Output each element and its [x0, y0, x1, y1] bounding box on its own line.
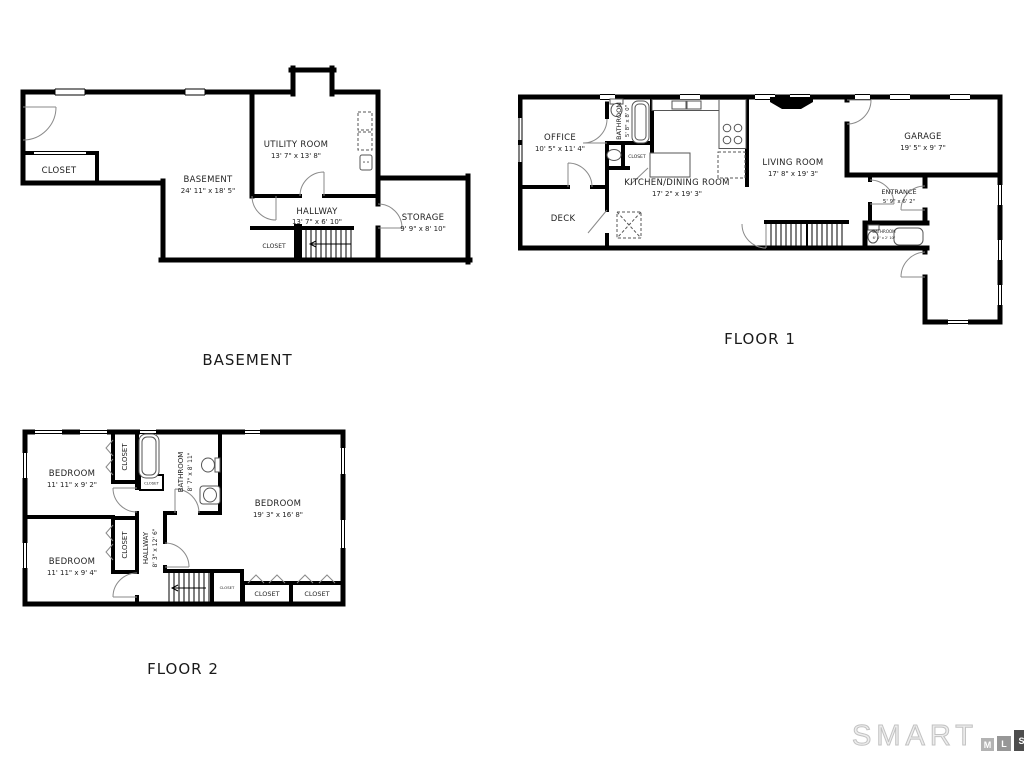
room-label-deck: DECK [551, 214, 576, 224]
room-label-bathroom-f2: BATHROOM [177, 452, 185, 493]
room-label-closet-br2: CLOSET [304, 590, 329, 598]
room-label-office: OFFICE [544, 133, 576, 143]
floorplan-sheet: CLOSET BASEMENT 24' 11" x 18' 5" UTILITY… [0, 0, 1024, 768]
room-label-storage: STORAGE [402, 213, 445, 223]
room-dims-bedroom2: 11' 11" x 9' 4" [47, 569, 97, 577]
floor1-title: FLOOR 1 [680, 330, 840, 348]
floor1-walls [520, 97, 1000, 322]
smart-logo-text: SMART [852, 722, 978, 751]
room-label-bedroom2: BEDROOM [49, 557, 95, 567]
room-label-bedroom1: BEDROOM [49, 469, 95, 479]
room-label-closet-mid: CLOSET [144, 481, 159, 486]
room-dims-hallway-f2: 8' 3" x 12' 6" [152, 528, 159, 567]
floor2-stairs [169, 573, 209, 604]
room-label-bathroom-top: BATHROOM [615, 102, 623, 140]
room-label-entrance: ENTRANCE [881, 188, 916, 196]
room-label-utility: UTILITY ROOM [264, 140, 328, 150]
room-dims-bathroom-f2: 8' 7" x 8' 11" [187, 452, 194, 491]
room-label-kitchen: KITCHEN/DINING ROOM [624, 178, 730, 188]
floor1-plan: OFFICE 10' 5" x 11' 4" BATHROOM 5' 8" x … [518, 90, 1014, 335]
room-dims-basement: 24' 11" x 18' 5" [181, 187, 236, 195]
mls-m-square: M [981, 738, 994, 751]
room-dims-bathroom-top: 5' 8" x 8' 0" [625, 105, 631, 137]
basement-title: BASEMENT [165, 351, 330, 369]
room-dims-kitchen: 17' 2" x 19' 3" [652, 190, 702, 198]
floor2-labels: BEDROOM 11' 11" x 9' 2" CLOSET CLOSET BA… [47, 443, 330, 598]
room-dims-garage: 19' 5" x 9' 7" [900, 144, 946, 152]
mls-l-square: L [997, 736, 1011, 751]
room-dims-hallway: 13' 7" x 6' 10" [292, 218, 342, 226]
room-dims-living: 17' 8" x 19' 3" [768, 170, 818, 178]
room-label-living: LIVING ROOM [762, 158, 823, 168]
room-dims-bedroom-big: 19' 3" x 16' 8" [253, 511, 303, 519]
room-label-basement: BASEMENT [183, 175, 233, 185]
basement-doors [23, 107, 402, 228]
room-label-closet: CLOSET [42, 166, 77, 176]
mls-s-square: S [1014, 730, 1024, 751]
floor1-windows [518, 93, 1003, 325]
room-label-closet-br1: CLOSET [254, 590, 279, 598]
room-label-hallway-f2: HALLWAY [142, 531, 150, 564]
floor2-title: FLOOR 2 [103, 660, 263, 678]
basement-utility-fixtures [358, 112, 372, 170]
room-dims-storage: 9' 9" x 8' 10" [400, 225, 446, 233]
room-label-closet-left: CLOSET [121, 531, 129, 559]
smart-mls-logo: SMART M L S [852, 722, 1024, 751]
room-label-closet2: CLOSET [262, 243, 286, 250]
room-label-closet-f1: CLOSET [628, 154, 646, 160]
room-dims-entrance: 5' 9" x 6' 2" [883, 199, 915, 205]
room-label-bathroom-small: BATHROOM [872, 229, 896, 234]
room-label-closet-stairs: CLOSET [220, 585, 235, 590]
room-label-closet-top: CLOSET [121, 443, 129, 471]
floor2-plan: BEDROOM 11' 11" x 9' 2" CLOSET CLOSET BA… [20, 428, 348, 608]
basement-labels: CLOSET BASEMENT 24' 11" x 18' 5" UTILITY… [42, 140, 446, 250]
room-label-garage: GARAGE [904, 132, 941, 142]
fireplace [770, 97, 813, 109]
room-dims-bathroom-small: 6' 4" x 2' 10" [873, 236, 896, 240]
room-dims-utility: 13' 7" x 13' 8" [271, 152, 321, 160]
basement-stairs [306, 230, 351, 260]
room-label-hallway: HALLWAY [296, 207, 338, 217]
room-dims-bedroom1: 11' 11" x 9' 2" [47, 481, 97, 489]
room-dims-office: 10' 5" x 11' 4" [535, 145, 585, 153]
basement-plan: CLOSET BASEMENT 24' 11" x 18' 5" UTILITY… [18, 62, 473, 267]
room-label-bedroom-big: BEDROOM [255, 499, 301, 509]
